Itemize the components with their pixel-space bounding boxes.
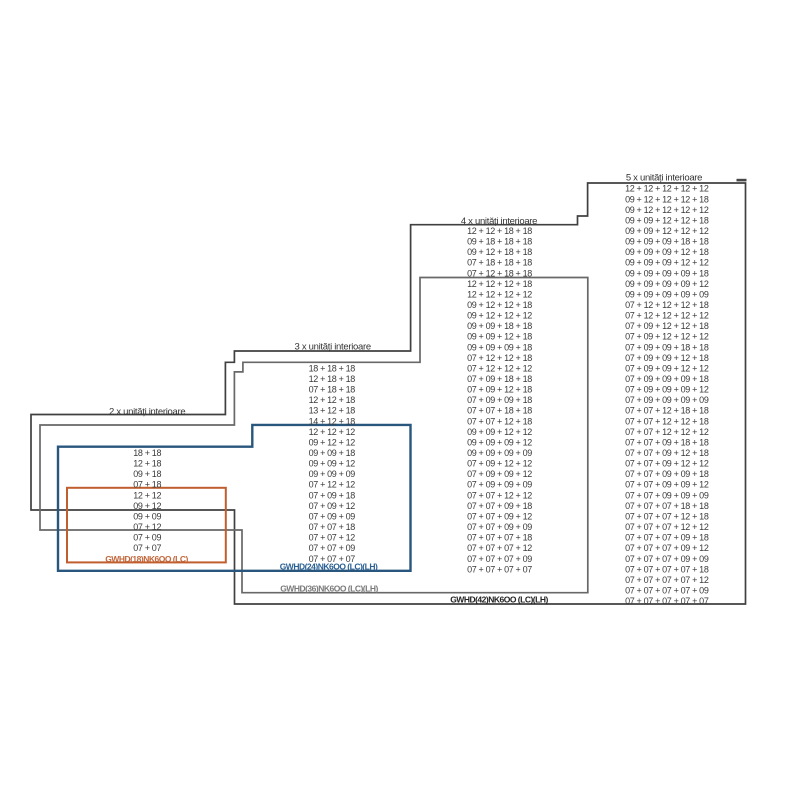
svg-text:07 + 12 + 18 + 18: 07 + 12 + 18 + 18	[467, 268, 532, 278]
svg-text:07 + 09 + 09 + 09 + 18: 07 + 09 + 09 + 09 + 18	[625, 374, 709, 384]
svg-text:07 + 07 + 09 + 09 + 09: 07 + 07 + 09 + 09 + 09	[625, 490, 709, 500]
svg-text:09 + 12 + 12 + 12 + 18: 09 + 12 + 12 + 12 + 18	[625, 194, 709, 204]
svg-text:07 + 07 + 07 + 07 + 07: 07 + 07 + 07 + 07 + 07	[625, 596, 709, 606]
svg-text:07 + 07 + 12 + 12: 07 + 07 + 12 + 12	[467, 490, 532, 500]
svg-text:12 + 12 + 12 + 12 + 12: 12 + 12 + 12 + 12 + 12	[625, 184, 709, 194]
svg-text:09 + 09 + 09 + 09 + 09: 09 + 09 + 09 + 09 + 09	[625, 289, 709, 299]
svg-text:07 + 09 + 12 + 12 + 18: 07 + 09 + 12 + 12 + 18	[625, 321, 709, 331]
svg-text:07 + 09 + 09 + 12: 07 + 09 + 09 + 12	[467, 469, 532, 479]
svg-text:12 + 12 + 18: 12 + 12 + 18	[309, 395, 356, 405]
svg-text:GWHD(24)NK6OO (LC)(LH): GWHD(24)NK6OO (LC)(LH)	[280, 562, 378, 572]
svg-text:07 + 07 + 07 + 09: 07 + 07 + 07 + 09	[467, 554, 532, 564]
svg-text:07 + 09 + 09 + 18: 07 + 09 + 09 + 18	[467, 395, 532, 405]
svg-text:07 + 12 + 12 + 12: 07 + 12 + 12 + 12	[467, 363, 532, 373]
svg-text:09 + 09 + 12 + 18: 09 + 09 + 12 + 18	[467, 332, 532, 342]
svg-text:07 + 09 + 12 + 12 + 12: 07 + 09 + 12 + 12 + 12	[625, 332, 709, 342]
svg-text:09 + 12 + 12 + 18: 09 + 12 + 12 + 18	[467, 300, 532, 310]
svg-text:07 + 12: 07 + 12	[133, 522, 161, 532]
svg-text:07 + 12 + 12 + 12 + 18: 07 + 12 + 12 + 12 + 18	[625, 300, 709, 310]
svg-text:07 + 09 + 18 + 18: 07 + 09 + 18 + 18	[467, 374, 532, 384]
svg-text:09 + 12: 09 + 12	[133, 501, 161, 511]
svg-text:09 + 09 + 09 + 12: 09 + 09 + 09 + 12	[467, 438, 532, 448]
svg-text:07 + 07 + 07 + 12 + 18: 07 + 07 + 07 + 12 + 18	[625, 512, 709, 522]
svg-text:5 x unități interioare: 5 x unități interioare	[626, 172, 702, 183]
svg-text:18 + 18 + 18: 18 + 18 + 18	[309, 363, 356, 373]
svg-text:07 + 07 + 07 + 12: 07 + 07 + 07 + 12	[467, 543, 532, 553]
svg-text:GWHD(36)NK6OO (LC)(LH): GWHD(36)NK6OO (LC)(LH)	[280, 583, 378, 593]
svg-text:09 + 09 + 12 + 12 + 18: 09 + 09 + 12 + 12 + 18	[625, 215, 709, 225]
svg-text:3 x unități interioare: 3 x unități interioare	[295, 342, 371, 353]
svg-text:07 + 12 + 12 + 18: 07 + 12 + 12 + 18	[467, 353, 532, 363]
svg-text:07 + 07 + 09 + 18 + 18: 07 + 07 + 09 + 18 + 18	[625, 438, 709, 448]
svg-text:12 + 18: 12 + 18	[133, 459, 161, 469]
svg-text:13 + 12 + 18: 13 + 12 + 18	[309, 406, 356, 416]
svg-text:07 + 12 + 12 + 12 + 12: 07 + 12 + 12 + 12 + 12	[625, 311, 709, 321]
svg-text:07 + 07: 07 + 07	[133, 543, 161, 553]
svg-text:07 + 18 + 18: 07 + 18 + 18	[309, 385, 356, 395]
svg-text:09 + 12 + 12 + 12 + 12: 09 + 12 + 12 + 12 + 12	[625, 205, 709, 215]
svg-text:12 + 12: 12 + 12	[133, 490, 161, 500]
svg-text:07 + 12 + 12: 07 + 12 + 12	[309, 480, 356, 490]
svg-text:09 + 09 + 18: 09 + 09 + 18	[309, 448, 356, 458]
svg-text:GWHD(42)NK6OO (LC)(LH): GWHD(42)NK6OO (LC)(LH)	[450, 594, 548, 604]
svg-text:09 + 09 + 12 + 12 + 12: 09 + 09 + 12 + 12 + 12	[625, 226, 709, 236]
svg-text:07 + 09 + 09 + 09 + 12: 07 + 09 + 09 + 09 + 12	[625, 385, 709, 395]
svg-text:09 + 09 + 12: 09 + 09 + 12	[309, 459, 356, 469]
svg-text:07 + 07 + 07 + 07 + 18: 07 + 07 + 07 + 07 + 18	[625, 564, 709, 574]
svg-text:09 + 09 + 18 + 18: 09 + 09 + 18 + 18	[467, 321, 532, 331]
svg-text:07 + 09 + 09 + 18 + 18: 07 + 09 + 09 + 18 + 18	[625, 342, 709, 352]
svg-text:07 + 07 + 12 + 18: 07 + 07 + 12 + 18	[467, 416, 532, 426]
svg-text:07 + 09 + 09 + 09: 07 + 09 + 09 + 09	[467, 480, 532, 490]
svg-text:12 + 12 + 12 + 18: 12 + 12 + 12 + 18	[467, 279, 532, 289]
svg-text:09 + 09 + 12 + 12: 09 + 09 + 12 + 12	[467, 427, 532, 437]
svg-text:14 + 12 + 18: 14 + 12 + 18	[309, 416, 356, 426]
svg-text:07 + 07 + 07 + 12 + 12: 07 + 07 + 07 + 12 + 12	[625, 522, 709, 532]
svg-text:07 + 09 + 09 + 12 + 12: 07 + 09 + 09 + 12 + 12	[625, 363, 709, 373]
svg-text:07 + 07 + 07 + 09 + 18: 07 + 07 + 07 + 09 + 18	[625, 533, 709, 543]
svg-text:07 + 09 + 18: 07 + 09 + 18	[309, 490, 356, 500]
svg-text:07 + 07 + 09 + 12 + 18: 07 + 07 + 09 + 12 + 18	[625, 448, 709, 458]
svg-text:12 + 18 + 18: 12 + 18 + 18	[309, 374, 356, 384]
svg-text:07 + 07 + 09: 07 + 07 + 09	[309, 543, 356, 553]
svg-text:09 + 09: 09 + 09	[133, 512, 161, 522]
svg-text:07 + 07 + 09 + 09 + 18: 07 + 07 + 09 + 09 + 18	[625, 469, 709, 479]
svg-text:09 + 09 + 09 + 18: 09 + 09 + 09 + 18	[467, 342, 532, 352]
svg-text:09 + 09 + 09 + 09 + 18: 09 + 09 + 09 + 09 + 18	[625, 268, 709, 278]
svg-text:GWHD(18)NK6OO (LC): GWHD(18)NK6OO (LC)	[105, 554, 188, 564]
svg-text:07 + 07 + 09 + 09 + 12: 07 + 07 + 09 + 09 + 12	[625, 480, 709, 490]
svg-text:07 + 07 + 07 + 07 + 09: 07 + 07 + 07 + 07 + 09	[625, 586, 709, 596]
svg-text:07 + 07 + 12 + 18 + 18: 07 + 07 + 12 + 18 + 18	[625, 406, 709, 416]
svg-text:07 + 07 + 07 + 18 + 18: 07 + 07 + 07 + 18 + 18	[625, 501, 709, 511]
svg-text:18 + 18: 18 + 18	[133, 448, 161, 458]
svg-text:07 + 07 + 07 + 07 + 12: 07 + 07 + 07 + 07 + 12	[625, 575, 709, 585]
svg-text:07 + 07 + 09 + 12: 07 + 07 + 09 + 12	[467, 512, 532, 522]
svg-text:07 + 09 + 09 + 12 + 18: 07 + 09 + 09 + 12 + 18	[625, 353, 709, 363]
svg-text:07 + 07 + 07 + 18: 07 + 07 + 07 + 18	[467, 533, 532, 543]
svg-text:09 + 18 + 18 + 18: 09 + 18 + 18 + 18	[467, 237, 532, 247]
svg-text:07 + 07 + 09 + 12 + 12: 07 + 07 + 09 + 12 + 12	[625, 459, 709, 469]
svg-text:12 + 12 + 12 + 12: 12 + 12 + 12 + 12	[467, 289, 532, 299]
svg-text:09 + 12 + 12: 09 + 12 + 12	[309, 438, 356, 448]
svg-text:12 + 12 + 18 + 18: 12 + 12 + 18 + 18	[467, 226, 532, 236]
svg-text:2 x unități interioare: 2 x unități interioare	[109, 407, 185, 418]
svg-text:07 + 09 + 12 + 12: 07 + 09 + 12 + 12	[467, 459, 532, 469]
svg-text:07 + 09 + 12 + 18: 07 + 09 + 12 + 18	[467, 385, 532, 395]
svg-text:07 + 18: 07 + 18	[133, 480, 161, 490]
svg-text:07 + 09 + 09: 07 + 09 + 09	[309, 512, 356, 522]
svg-text:09 + 09 + 09 + 12 + 12: 09 + 09 + 09 + 12 + 12	[625, 258, 709, 268]
svg-text:07 + 07 + 12 + 12 + 18: 07 + 07 + 12 + 12 + 18	[625, 416, 709, 426]
svg-text:12 + 12 + 12: 12 + 12 + 12	[309, 427, 356, 437]
svg-text:07 + 07 + 09 + 09: 07 + 07 + 09 + 09	[467, 522, 532, 532]
svg-text:07 + 09: 07 + 09	[133, 533, 161, 543]
svg-text:09 + 09 + 09 + 09 + 12: 09 + 09 + 09 + 09 + 12	[625, 279, 709, 289]
svg-text:07 + 07 + 18 + 18: 07 + 07 + 18 + 18	[467, 406, 532, 416]
svg-text:07 + 07 + 18: 07 + 07 + 18	[309, 522, 356, 532]
svg-text:07 + 09 + 09 + 09 + 09: 07 + 09 + 09 + 09 + 09	[625, 395, 709, 405]
svg-text:09 + 09 + 09 + 12 + 18: 09 + 09 + 09 + 12 + 18	[625, 247, 709, 257]
svg-text:07 + 07 + 12: 07 + 07 + 12	[309, 533, 356, 543]
svg-text:09 + 12 + 12 + 12: 09 + 12 + 12 + 12	[467, 311, 532, 321]
svg-text:09 + 09 + 09: 09 + 09 + 09	[309, 469, 356, 479]
svg-text:09 + 09 + 09 + 18 + 18: 09 + 09 + 09 + 18 + 18	[625, 237, 709, 247]
svg-text:09 + 09 + 09 + 09: 09 + 09 + 09 + 09	[467, 448, 532, 458]
svg-text:07 + 18 + 18 + 18: 07 + 18 + 18 + 18	[467, 258, 532, 268]
svg-text:07 + 07 + 12 + 12 + 12: 07 + 07 + 12 + 12 + 12	[625, 427, 709, 437]
svg-text:07 + 07 + 09 + 18: 07 + 07 + 09 + 18	[467, 501, 532, 511]
svg-text:09 + 12 + 18 + 18: 09 + 12 + 18 + 18	[467, 247, 532, 257]
svg-text:07 + 07 + 07 + 09 + 12: 07 + 07 + 07 + 09 + 12	[625, 543, 709, 553]
svg-text:07 + 07 + 07 + 09 + 09: 07 + 07 + 07 + 09 + 09	[625, 554, 709, 564]
svg-text:07 + 07 + 07 + 07: 07 + 07 + 07 + 07	[467, 564, 532, 574]
svg-text:07 + 09 + 12: 07 + 09 + 12	[309, 501, 356, 511]
svg-text:09 + 18: 09 + 18	[133, 469, 161, 479]
